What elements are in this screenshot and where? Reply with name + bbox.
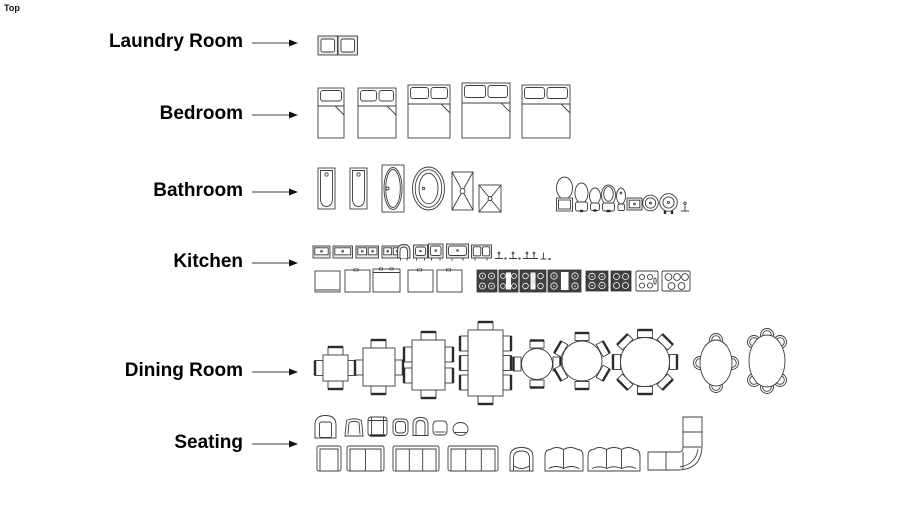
bathtub-symbol[interactable] (318, 168, 335, 209)
barrel-chair-small-symbol[interactable] (413, 418, 428, 436)
gas-range-6-burner-symbol[interactable] (520, 270, 546, 292)
oval-table-6-chairs-symbol[interactable] (748, 329, 787, 394)
bedroom-symbols (300, 80, 590, 145)
twin-bed-symbol[interactable] (318, 88, 344, 138)
toilet-elongated-symbol[interactable] (602, 185, 616, 211)
freestanding-oval-tub-symbol[interactable] (413, 167, 445, 210)
laundry-room-symbols (310, 28, 370, 60)
bidet-symbol[interactable] (617, 188, 626, 211)
sofa-3-seat-large-symbol[interactable] (448, 446, 498, 471)
rect-table-6-chairs-symbol[interactable] (404, 332, 453, 398)
square-sink-2-symbol[interactable] (429, 244, 444, 261)
arrow-kitchen-icon (251, 257, 299, 269)
side-chair-symbol[interactable] (433, 421, 447, 435)
range-with-griddle-symbol[interactable] (548, 270, 581, 292)
view-label: Top (4, 3, 20, 13)
tub-chair-symbol[interactable] (315, 416, 336, 439)
slipper-chair-symbol[interactable] (345, 419, 363, 436)
toilet-with-tank-symbol[interactable] (557, 177, 573, 211)
faucet-symbol[interactable] (681, 202, 689, 211)
refrigerator-3-symbol[interactable] (373, 268, 400, 292)
club-chair-symbol[interactable] (368, 417, 387, 436)
toilet-round-symbol[interactable] (575, 183, 588, 211)
bathroom-symbols (300, 160, 760, 218)
toilet-compact-symbol[interactable] (590, 188, 601, 211)
rect-table-4-chairs-symbol[interactable] (355, 340, 403, 394)
square-table-4-chairs-symbol[interactable] (315, 347, 356, 389)
california-king-bed-symbol[interactable] (522, 85, 570, 138)
oval-table-4-chairs-symbol[interactable] (694, 334, 739, 393)
barrel-chair-symbol[interactable] (510, 448, 533, 472)
shower-stall-symbol[interactable] (452, 172, 473, 210)
bathtub-2-symbol[interactable] (350, 168, 367, 209)
refrigerator-2-symbol[interactable] (345, 269, 370, 292)
refrigerator-4-symbol[interactable] (408, 269, 433, 292)
wide-single-sink-symbol[interactable] (447, 244, 469, 261)
queen-bed-symbol[interactable] (408, 85, 450, 138)
washer-symbol[interactable] (318, 36, 338, 55)
full-bed-symbol[interactable] (358, 88, 396, 138)
stool-symbol[interactable] (453, 423, 468, 436)
sectional-sofa-symbol[interactable] (648, 417, 702, 470)
label-bathroom: Bathroom (0, 180, 243, 202)
loveseat-symbol[interactable] (347, 446, 384, 471)
label-bedroom: Bedroom (0, 103, 243, 125)
electric-cooktop-2-symbol[interactable] (662, 271, 690, 291)
curved-sofa-symbol[interactable] (588, 448, 640, 472)
gas-range-narrow-symbol[interactable] (499, 270, 518, 292)
faucet-2-symbol[interactable] (509, 252, 520, 259)
label-laundry-room: Laundry Room (0, 31, 243, 53)
armchair-symbol[interactable] (317, 446, 341, 471)
round-sink-symbol[interactable] (643, 195, 659, 211)
arrow-bedroom-icon (251, 109, 299, 121)
refrigerator-1-symbol[interactable] (315, 271, 340, 292)
label-seating: Seating (0, 432, 243, 454)
arrow-bathroom-icon (251, 186, 299, 198)
round-table-6-chairs-symbol[interactable] (554, 333, 609, 389)
sketchup-top-viewport: Top Laundry Room Bedroom Bathroom Kitche… (0, 0, 910, 512)
arrow-seating-icon (251, 438, 299, 450)
arrow-dining-icon (251, 366, 299, 378)
dining-room-symbols (300, 318, 810, 406)
seating-symbols (300, 405, 720, 485)
double-bowl-sink-symbol[interactable] (356, 246, 379, 258)
electric-cooktop-symbol[interactable] (636, 271, 658, 291)
corner-shower-symbol[interactable] (479, 185, 501, 212)
rectangular-sink-symbol[interactable] (627, 198, 642, 210)
faucet-3-symbol[interactable] (541, 253, 551, 260)
label-dining-room: Dining Room (0, 360, 243, 382)
round-table-4-chairs-symbol[interactable] (514, 341, 561, 388)
single-bowl-sink-symbol[interactable] (333, 246, 353, 258)
cooktop-4-burner-symbol[interactable] (586, 271, 608, 291)
armchair-small-symbol[interactable] (393, 419, 408, 436)
double-handle-faucet-symbol[interactable] (523, 252, 538, 258)
arrow-laundry-icon (251, 37, 299, 49)
faucet-1-symbol[interactable] (495, 252, 506, 259)
gas-range-4-burner-symbol[interactable] (477, 270, 497, 292)
offset-double-sink-symbol[interactable] (472, 245, 492, 261)
cooktop-4-burner-2-symbol[interactable] (611, 271, 631, 291)
sofa-3-seat-symbol[interactable] (393, 446, 439, 471)
round-table-8-chairs-symbol[interactable] (613, 330, 677, 394)
apron-sink-symbol[interactable] (398, 245, 411, 261)
round-sink-with-faucet-symbol[interactable] (660, 194, 678, 214)
curved-loveseat-symbol[interactable] (545, 448, 583, 472)
bar-sink-symbol[interactable] (313, 246, 330, 258)
rect-table-8-chairs-symbol[interactable] (460, 322, 511, 404)
dryer-symbol[interactable] (338, 36, 358, 55)
label-kitchen: Kitchen (0, 251, 243, 273)
square-sink-symbol[interactable] (414, 245, 428, 261)
drop-in-tub-symbol[interactable] (382, 165, 404, 212)
kitchen-symbols (305, 236, 705, 298)
king-bed-symbol[interactable] (462, 83, 510, 138)
refrigerator-5-symbol[interactable] (437, 269, 462, 292)
